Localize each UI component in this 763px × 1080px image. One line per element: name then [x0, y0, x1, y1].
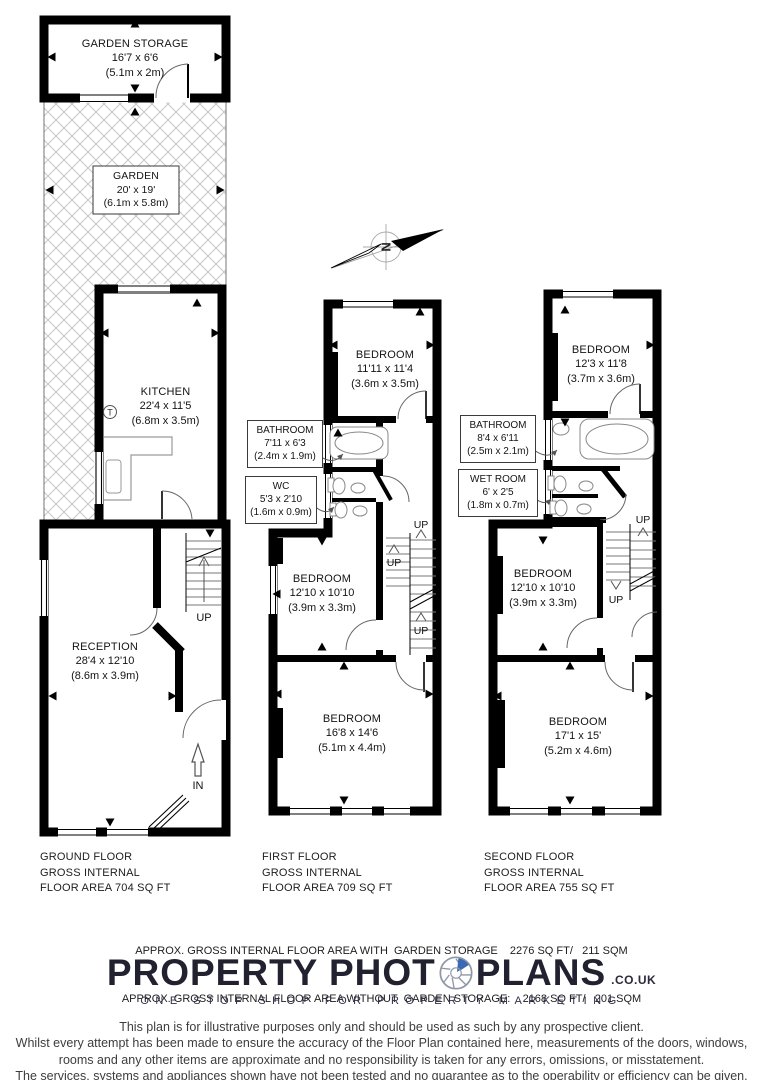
room-size-ft: 16'8 x 14'6: [292, 726, 412, 740]
room-name: WET ROOM: [461, 473, 535, 486]
room-label-kitchen: KITCHEN 22'4 x 11'5 (6.8m x 3.5m): [108, 385, 223, 428]
ground-floor-plan: T UP IN: [39, 20, 226, 837]
room-size-ft: 20' x 19': [95, 184, 177, 198]
disclaimer-line: The services, systems and appliances sho…: [0, 1068, 763, 1080]
room-label-f1-wc: WC 5'3 x 2'10 (1.6m x 0.9m): [245, 476, 317, 524]
room-size-m: (1.6m x 0.9m): [248, 506, 314, 519]
room-size-ft: 6' x 2'5: [461, 486, 535, 499]
caption-ground-floor: GROUND FLOOR GROSS INTERNAL FLOOR AREA 7…: [40, 850, 171, 897]
room-size-ft: 28'4 x 12'10: [45, 654, 165, 668]
caption-line: GROSS INTERNAL: [484, 866, 615, 882]
room-size-ft: 12'10 x 10'10: [483, 581, 603, 595]
room-name: WC: [248, 480, 314, 493]
room-label-f1-bedroom-top: BEDROOM 11'11 x 11'4 (3.6m x 3.5m): [325, 348, 445, 391]
disclaimer-line: This plan is for illustrative purposes o…: [0, 1019, 763, 1035]
room-label-f1-bedroom-mid: BEDROOM 12'10 x 10'10 (3.9m x 3.3m): [262, 572, 382, 615]
disclaimer: This plan is for illustrative purposes o…: [0, 1019, 763, 1080]
room-size-m: (1.8m x 0.7m): [461, 499, 535, 512]
ground-up-label: UP: [196, 612, 211, 624]
caption-line: FLOOR AREA 755 SQ FT: [484, 881, 615, 897]
room-size-m: (6.8m x 3.5m): [108, 414, 223, 428]
room-label-reception: RECEPTION 28'4 x 12'10 (8.6m x 3.9m): [45, 640, 165, 683]
room-size-m: (5.1m x 2m): [60, 66, 210, 80]
room-size-ft: 16'7 x 6'6: [60, 51, 210, 65]
caption-line: GROUND FLOOR: [40, 850, 171, 866]
floorplan-page: T UP IN: [0, 0, 763, 1080]
up-label: UP: [609, 594, 624, 606]
room-size-ft: 8'4 x 6'11: [463, 432, 533, 445]
room-name: BEDROOM: [541, 343, 661, 357]
room-size-ft: 22'4 x 11'5: [108, 399, 223, 413]
compass-letter: N: [379, 242, 394, 251]
disclaimer-line: rooms and any other items are approximat…: [0, 1052, 763, 1068]
room-size-m: (3.9m x 3.3m): [262, 601, 382, 615]
room-size-ft: 11'11 x 11'4: [325, 362, 445, 376]
room-name: BATHROOM: [463, 419, 533, 432]
room-size-ft: 12'3 x 11'8: [541, 357, 661, 371]
room-label-garden-storage: GARDEN STORAGE 16'7 x 6'6 (5.1m x 2m): [60, 37, 210, 80]
room-size-m: (6.1m x 5.8m): [95, 197, 177, 211]
room-label-f2-bedroom-mid: BEDROOM 12'10 x 10'10 (3.9m x 3.3m): [483, 567, 603, 610]
brand-text-left: PROPERTY PHOT: [107, 952, 436, 994]
room-size-ft: 12'10 x 10'10: [262, 586, 382, 600]
room-size-ft: 17'1 x 15': [518, 729, 638, 743]
disclaimer-line: Whilst every attempt has been made to en…: [0, 1035, 763, 1051]
camera-aperture-icon: [437, 954, 475, 992]
up-label: UP: [636, 514, 651, 526]
caption-line: GROSS INTERNAL: [262, 866, 393, 882]
room-name: KITCHEN: [108, 385, 223, 399]
brand-domain: .CO.UK: [611, 973, 656, 987]
room-name: GARDEN STORAGE: [60, 37, 210, 51]
compass-north-arrow: N: [331, 224, 444, 270]
room-name: GARDEN: [95, 170, 177, 184]
room-name: BEDROOM: [518, 715, 638, 729]
brand-tagline: ONE STOP SHOP FOR PROPERTY MARKETING: [0, 995, 763, 1007]
room-size-m: (5.2m x 4.6m): [518, 744, 638, 758]
caption-second-floor: SECOND FLOOR GROSS INTERNAL FLOOR AREA 7…: [484, 850, 615, 897]
caption-line: FLOOR AREA 704 SQ FT: [40, 881, 171, 897]
room-size-m: (3.6m x 3.5m): [325, 377, 445, 391]
room-size-m: (2.5m x 2.1m): [463, 445, 533, 458]
caption-line: SECOND FLOOR: [484, 850, 615, 866]
room-name: RECEPTION: [45, 640, 165, 654]
room-size-m: (3.9m x 3.3m): [483, 596, 603, 610]
up-label: UP: [387, 557, 402, 569]
kitchen-sink: [106, 460, 121, 493]
caption-first-floor: FIRST FLOOR GROSS INTERNAL FLOOR AREA 70…: [262, 850, 393, 897]
room-size-m: (8.6m x 3.9m): [45, 669, 165, 683]
room-label-garden: GARDEN 20' x 19' (6.1m x 5.8m): [95, 170, 177, 211]
room-name: BEDROOM: [292, 712, 412, 726]
room-size-ft: 5'3 x 2'10: [248, 493, 314, 506]
room-label-f2-bathroom: BATHROOM 8'4 x 6'11 (2.5m x 2.1m): [460, 415, 536, 463]
room-label-f2-wet-room: WET ROOM 6' x 2'5 (1.8m x 0.7m): [458, 469, 538, 517]
room-label-f1-bedroom-bottom: BEDROOM 16'8 x 14'6 (5.1m x 4.4m): [292, 712, 412, 755]
room-size-ft: 7'11 x 6'3: [250, 437, 320, 450]
caption-line: GROSS INTERNAL: [40, 866, 171, 882]
hall-wall: [153, 524, 161, 608]
room-size-m: (5.1m x 4.4m): [292, 741, 412, 755]
brand-text-right: PLANS: [476, 952, 606, 994]
caption-line: FLOOR AREA 709 SQ FT: [262, 881, 393, 897]
room-label-f2-bedroom-top: BEDROOM 12'3 x 11'8 (3.7m x 3.6m): [541, 343, 661, 386]
up-label: UP: [414, 519, 429, 531]
room-name: BATHROOM: [250, 424, 320, 437]
room-name: BEDROOM: [325, 348, 445, 362]
logo: PROPERTY PHOT PLANS .CO.UK ONE STOP SHOP…: [0, 952, 763, 1007]
room-name: BEDROOM: [262, 572, 382, 586]
caption-line: FIRST FLOOR: [262, 850, 393, 866]
room-name: BEDROOM: [483, 567, 603, 581]
in-label: IN: [193, 780, 204, 792]
room-label-f1-bathroom: BATHROOM 7'11 x 6'3 (2.4m x 1.9m): [247, 420, 323, 468]
room-size-m: (3.7m x 3.6m): [541, 372, 661, 386]
up-label: UP: [414, 625, 429, 637]
room-size-m: (2.4m x 1.9m): [250, 450, 320, 463]
room-label-f2-bedroom-bottom: BEDROOM 17'1 x 15' (5.2m x 4.6m): [518, 715, 638, 758]
